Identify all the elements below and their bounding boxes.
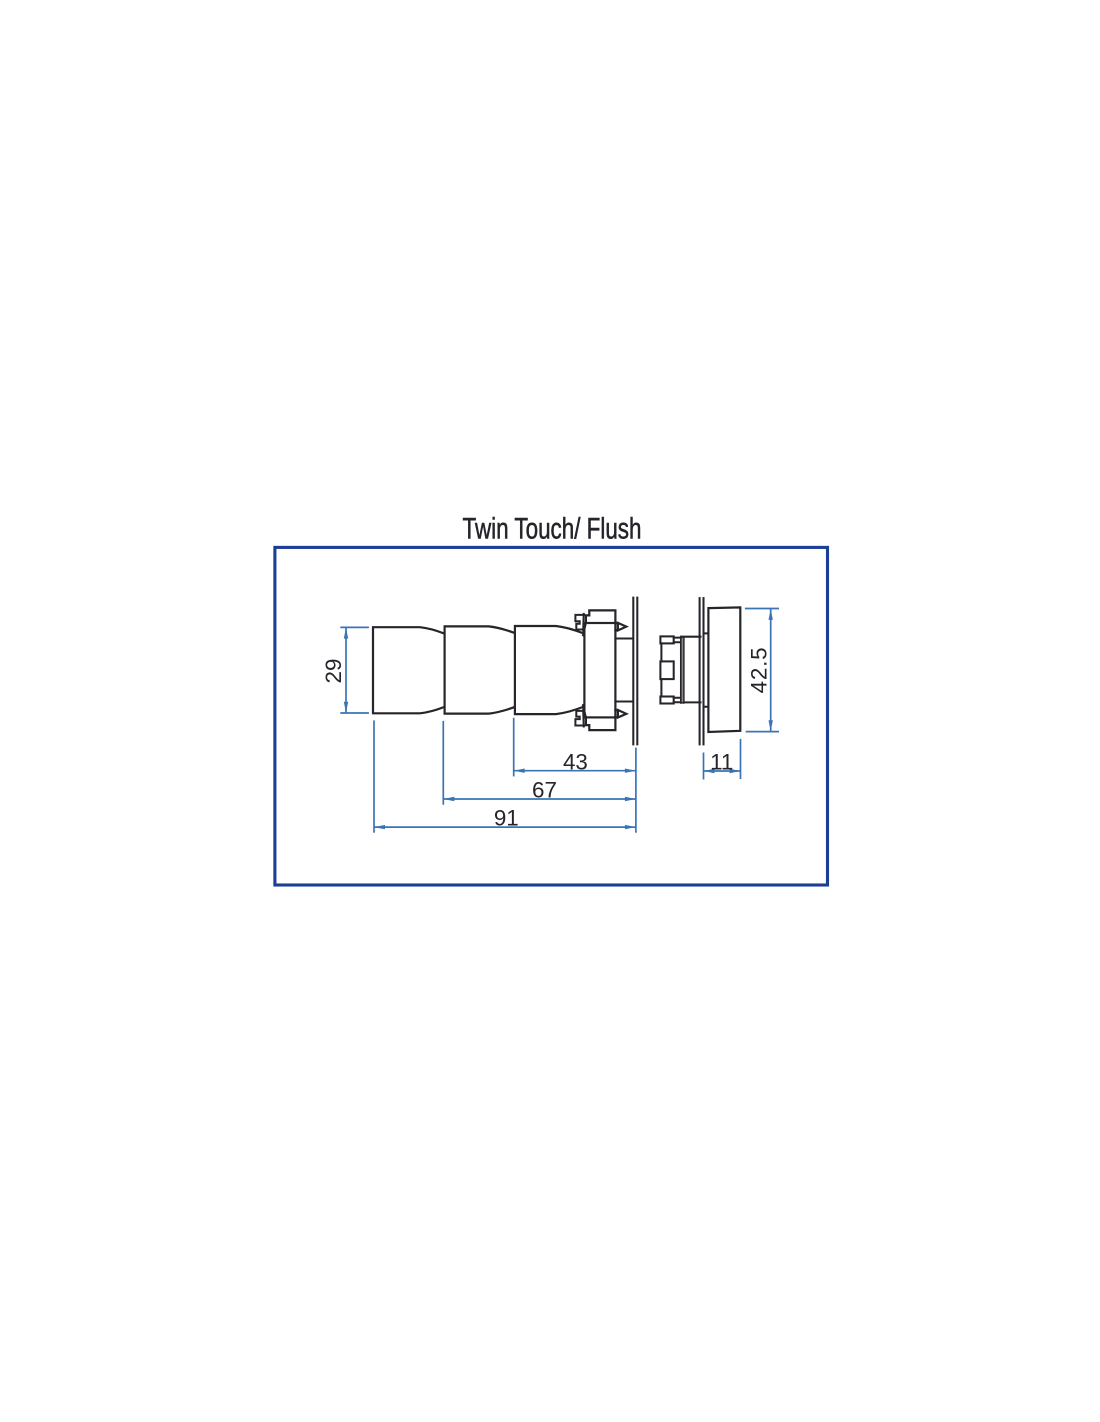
svg-text:29: 29 xyxy=(321,659,346,684)
svg-text:91: 91 xyxy=(494,806,519,831)
svg-text:42.5: 42.5 xyxy=(747,647,772,694)
svg-text:43: 43 xyxy=(563,749,588,774)
svg-text:67: 67 xyxy=(532,778,557,803)
svg-text:Twin Touch/ Flush: Twin Touch/ Flush xyxy=(463,511,642,545)
svg-text:11: 11 xyxy=(710,749,733,774)
